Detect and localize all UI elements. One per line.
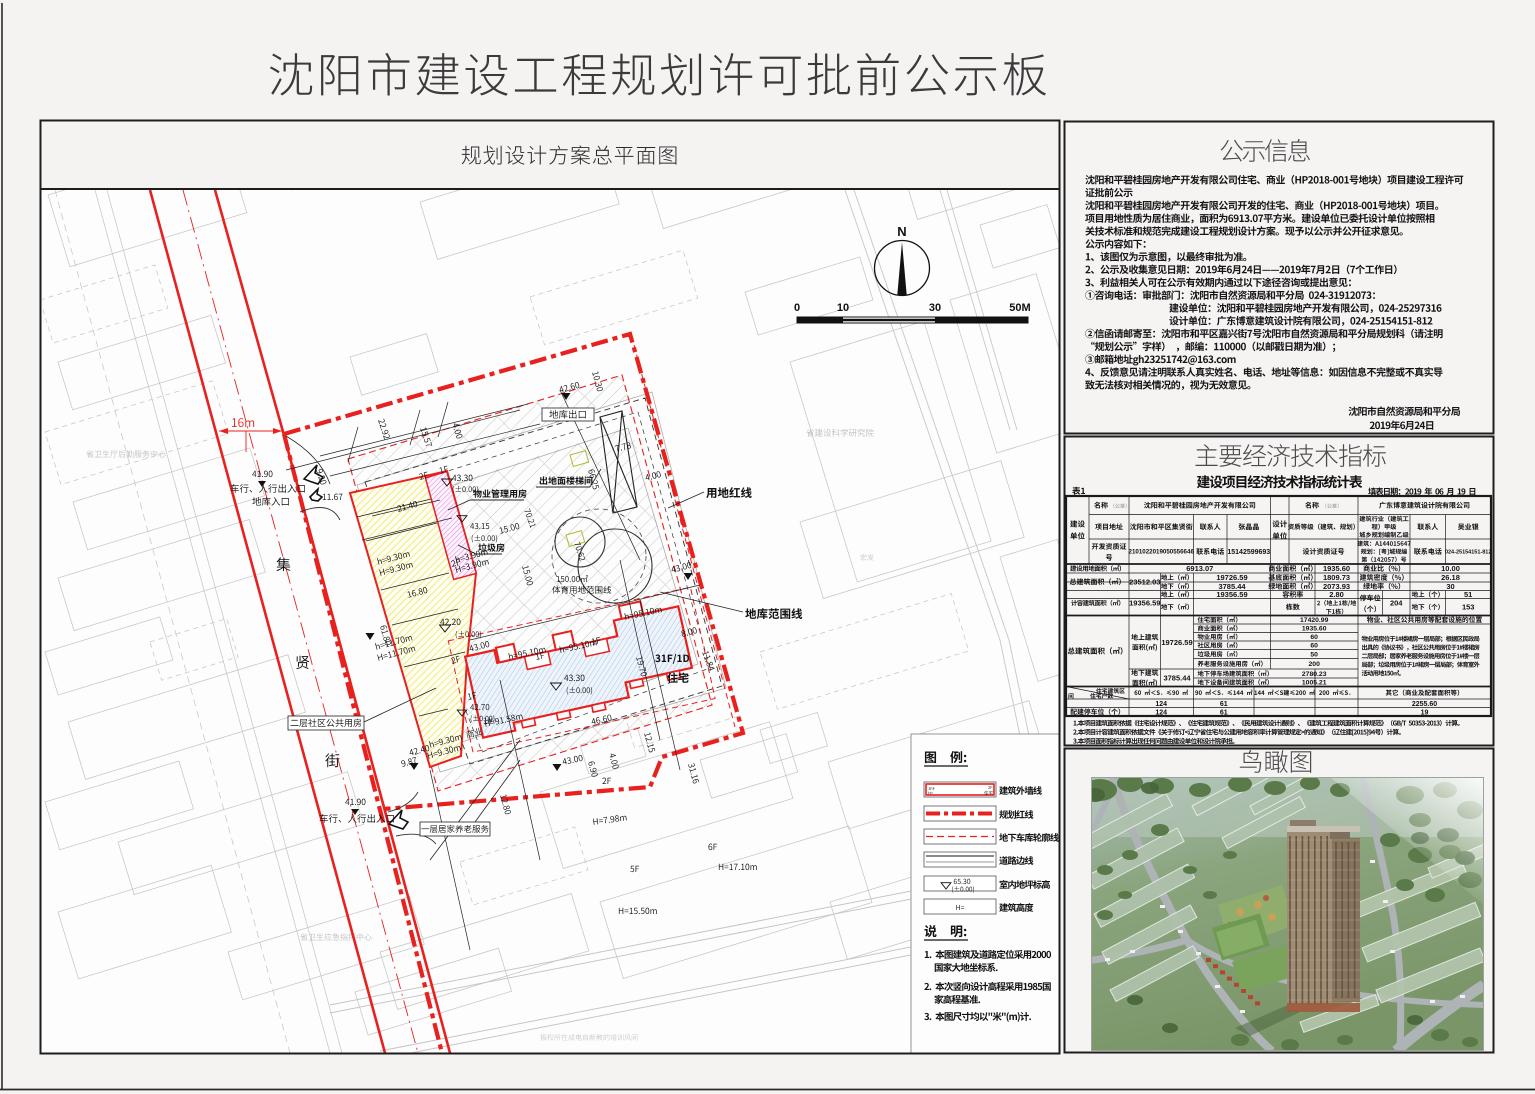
svg-text:50: 50 <box>1310 651 1318 658</box>
svg-text:024-25154151-812: 024-25154151-812 <box>1445 550 1492 556</box>
svg-text:10: 10 <box>837 302 849 314</box>
svg-text:30: 30 <box>1446 582 1454 591</box>
svg-text:19356.59: 19356.59 <box>1216 590 1247 599</box>
svg-text:19356.59: 19356.59 <box>1129 599 1160 608</box>
svg-text:26.18: 26.18 <box>1441 573 1460 582</box>
svg-text:N: N <box>897 224 906 239</box>
svg-text:2101022019050556646: 2101022019050556646 <box>1129 549 1195 556</box>
svg-text:15142599693: 15142599693 <box>1227 549 1270 556</box>
svg-text:153: 153 <box>1462 603 1475 612</box>
svg-text:204: 204 <box>1390 599 1403 608</box>
svg-text:2780.23: 2780.23 <box>1302 671 1327 678</box>
svg-text:124: 124 <box>1155 709 1167 716</box>
svg-text:1809.73: 1809.73 <box>1323 573 1350 582</box>
svg-text:1935.60: 1935.60 <box>1323 564 1350 573</box>
svg-text:30: 30 <box>929 302 941 314</box>
svg-text:0: 0 <box>794 302 800 314</box>
svg-text:60: 60 <box>1310 643 1318 650</box>
svg-text:19726.59: 19726.59 <box>1216 573 1247 582</box>
svg-text:19: 19 <box>1421 709 1429 716</box>
svg-text:60: 60 <box>1310 634 1318 641</box>
svg-text:61: 61 <box>1220 709 1228 716</box>
svg-text:2.80: 2.80 <box>1329 590 1344 599</box>
svg-text:50M: 50M <box>1009 302 1030 314</box>
svg-text:6913.07: 6913.07 <box>1186 564 1213 573</box>
svg-text:3785.44: 3785.44 <box>1163 674 1191 683</box>
svg-text:17420.99: 17420.99 <box>1300 617 1329 624</box>
svg-text:200: 200 <box>1309 661 1321 668</box>
svg-text:51: 51 <box>1464 590 1472 599</box>
svg-text:1935.60: 1935.60 <box>1302 626 1327 633</box>
svg-text:2255.60: 2255.60 <box>1412 701 1437 708</box>
svg-text:10.00: 10.00 <box>1441 564 1460 573</box>
svg-text:23512.03: 23512.03 <box>1129 578 1160 587</box>
svg-text:19726.59: 19726.59 <box>1161 638 1192 647</box>
svg-text:124: 124 <box>1155 701 1167 708</box>
svg-text:61: 61 <box>1220 701 1228 708</box>
svg-text:1005.21: 1005.21 <box>1302 680 1327 687</box>
